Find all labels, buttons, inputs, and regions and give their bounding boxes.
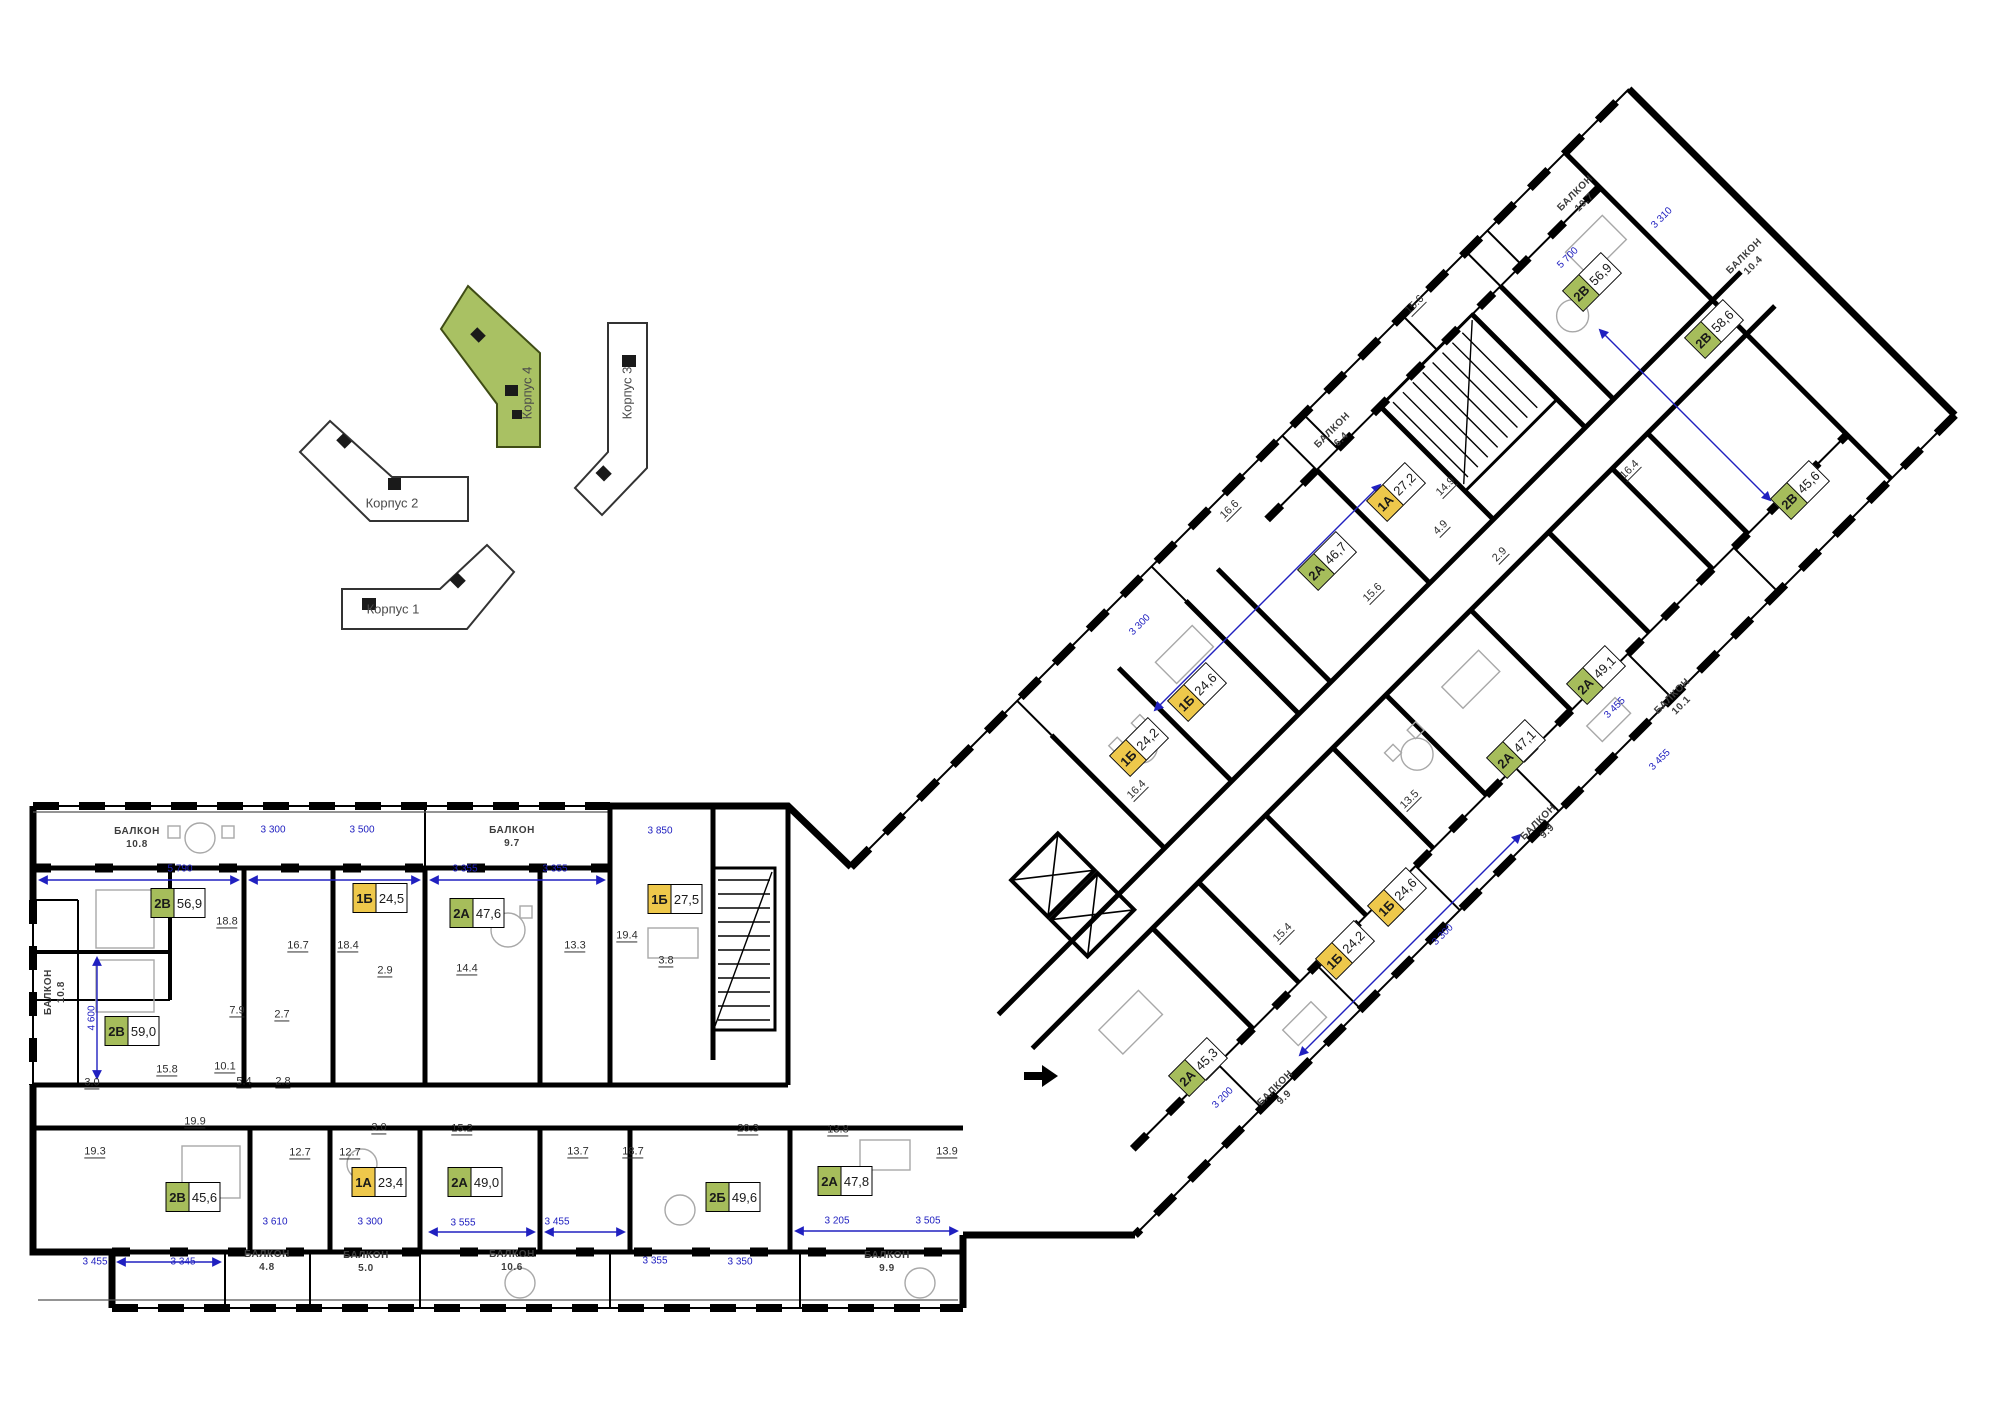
apartment-badge[interactable]: 1Б24,2	[1109, 717, 1169, 777]
room-area-label: 3.8	[658, 954, 673, 967]
apartment-area: 47,6	[474, 899, 504, 927]
balcony-area: 10.8	[114, 838, 160, 851]
balcony-label: БАЛКОН4.8	[244, 1248, 290, 1274]
dimension-label: 3 455	[544, 1217, 569, 1228]
room-area-label: 15.2	[451, 1122, 472, 1135]
room-area-label: 14.4	[456, 962, 477, 975]
dimension-label: 3 500	[349, 825, 374, 836]
balcony-area: 10.8	[55, 969, 68, 1015]
room-area-label: 2.9	[377, 964, 392, 977]
room-area-label: 13.7	[567, 1145, 588, 1158]
room-area-label: 10.1	[214, 1060, 235, 1073]
site-label-korpus-2[interactable]: Корпус 2	[366, 496, 419, 511]
balcony-word: БАЛКОН	[489, 824, 535, 837]
balcony-word: БАЛКОН	[489, 1248, 535, 1261]
apartment-area: 45,6	[190, 1183, 220, 1211]
apartment-badge[interactable]: 2В58,6	[1684, 299, 1744, 359]
apartment-badge[interactable]: 2А49,0	[448, 1167, 503, 1197]
dimension-label: 3 850	[647, 826, 672, 837]
balcony-label: БАЛКОН6.4	[1312, 410, 1363, 461]
room-area-label: 16.6	[1218, 498, 1242, 522]
apartment-badge[interactable]: 2А46,7	[1297, 531, 1357, 591]
apartment-type: 2А	[819, 1167, 842, 1195]
floorplan-page: 2В56,91Б24,52А47,61Б27,52В59,02В45,61А23…	[0, 0, 2000, 1415]
balcony-label: БАЛКОН10.6	[489, 1248, 535, 1274]
apartment-type: 1А	[353, 1168, 376, 1196]
dimension-label: 3 300	[1127, 612, 1152, 637]
apartment-area: 59,0	[129, 1017, 159, 1045]
dimension-label: 4 600	[87, 1005, 98, 1030]
apartment-badge[interactable]: 2А47,6	[450, 898, 505, 928]
balcony-word: БАЛКОН	[864, 1249, 910, 1262]
apartment-badge[interactable]: 2Б49,6	[706, 1182, 761, 1212]
balcony-label: БАЛКОН10.8	[42, 969, 68, 1015]
balcony-label: БАЛКОН9.9	[1518, 802, 1569, 853]
balcony-word: БАЛКОН	[343, 1249, 389, 1262]
dimension-label: 3 310	[1649, 205, 1674, 230]
balcony-label: БАЛКОН9.9	[1255, 1068, 1306, 1119]
apartment-badge[interactable]: 1Б24,6	[1167, 662, 1227, 722]
room-area-label: 14.9	[1434, 475, 1458, 499]
room-area-label: 13.9	[936, 1145, 957, 1158]
balcony-area: 9.7	[489, 837, 535, 850]
site-label-korpus-4[interactable]: Корпус 4	[520, 367, 535, 420]
apartment-type: 2А	[449, 1168, 472, 1196]
apartment-area: 49,0	[472, 1168, 502, 1196]
apartment-badge[interactable]: 2А45,3	[1168, 1037, 1228, 1097]
balcony-area: 5.0	[343, 1262, 389, 1275]
apartment-area: 49,6	[730, 1183, 760, 1211]
balcony-label: БАЛКОН5.0	[343, 1249, 389, 1275]
balcony-area: 9.9	[864, 1262, 910, 1275]
room-area-label: 4.9	[1431, 518, 1451, 538]
room-area-label: 2.8	[275, 1075, 290, 1088]
room-area-label: 19.4	[616, 929, 637, 942]
dimension-label: 3 300	[260, 825, 285, 836]
apartment-badge[interactable]: 1Б27,5	[648, 884, 703, 914]
balcony-area: 10.6	[489, 1261, 535, 1274]
apartment-type: 2В	[167, 1183, 190, 1211]
room-area-label: 15.8	[156, 1063, 177, 1076]
apartment-badge[interactable]: 1А23,4	[352, 1167, 407, 1197]
dimension-label: 3 355	[642, 1256, 667, 1267]
site-label-korpus-3[interactable]: Корпус 3	[620, 367, 635, 420]
dimension-label: 3 300	[357, 1217, 382, 1228]
room-area-label: 3.0	[84, 1076, 99, 1089]
apartment-type: 1Б	[649, 885, 672, 913]
dimension-label: 3 455	[1602, 695, 1627, 720]
dimension-label: 5 700	[1555, 245, 1580, 270]
room-area-label: 12.7	[339, 1146, 360, 1159]
dimension-label: 3 355	[542, 864, 567, 875]
balcony-word: БАЛКОН	[244, 1248, 290, 1261]
room-area-label: 13.8	[827, 1123, 848, 1136]
dimension-label: 3 300	[1430, 922, 1455, 947]
room-area-label: 20.3	[737, 1122, 758, 1135]
apartment-badge[interactable]: 2В45,6	[166, 1182, 221, 1212]
apartment-badge[interactable]: 1Б24,6	[1367, 867, 1427, 927]
apartment-type: 2А	[451, 899, 474, 927]
room-area-label: 13.5	[1398, 788, 1422, 812]
dimension-label: 3 555	[450, 1218, 475, 1229]
room-area-label: 19.3	[84, 1145, 105, 1158]
apartment-type: 2В	[106, 1017, 129, 1045]
room-area-label: 15.4	[1271, 921, 1295, 945]
dimension-label: 3 355	[452, 864, 477, 875]
apartment-badge[interactable]: 2А47,8	[818, 1166, 873, 1196]
room-area-label: 2.9	[1490, 545, 1510, 565]
room-area-label: 2.7	[274, 1008, 289, 1021]
dimension-label: 3 205	[824, 1216, 849, 1227]
balcony-label: БАЛКОН9.7	[489, 824, 535, 850]
dimension-label: 5 790	[167, 864, 192, 875]
apartment-badge[interactable]: 1Б24,5	[353, 883, 408, 913]
apartment-badge[interactable]: 2В56,9	[151, 888, 206, 918]
balcony-word: БАЛКОН	[42, 969, 55, 1015]
apartment-area: 23,4	[376, 1168, 406, 1196]
room-area-label: 16.7	[287, 939, 308, 952]
apartment-area: 56,9	[175, 889, 205, 917]
room-area-label: 12.7	[289, 1146, 310, 1159]
room-area-label: 18.8	[216, 915, 237, 928]
balcony-label: БАЛКОН10.1	[1652, 676, 1703, 727]
apartment-area: 27,5	[672, 885, 702, 913]
apartment-badge[interactable]: 1Б24,2	[1315, 920, 1375, 980]
room-area-label: 15.6	[1403, 293, 1427, 317]
balcony-label: БАЛКОН9.9	[864, 1249, 910, 1275]
room-area-label: 19.9	[184, 1115, 205, 1128]
room-area-label: 18.7	[622, 1145, 643, 1158]
dimension-label: 3 200	[1210, 1085, 1235, 1110]
room-area-label: 16.4	[1618, 458, 1642, 482]
room-area-label: 16.4	[1125, 778, 1149, 802]
apartment-badge[interactable]: 2В45,6	[1770, 460, 1830, 520]
balcony-word: БАЛКОН	[114, 825, 160, 838]
apartment-type: 2В	[152, 889, 175, 917]
apartment-badge[interactable]: 1А27,2	[1366, 462, 1426, 522]
dimension-label: 3 505	[915, 1216, 940, 1227]
apartment-area: 24,5	[377, 884, 407, 912]
site-label-korpus-1[interactable]: Корпус 1	[367, 602, 420, 617]
apartment-area: 47,8	[842, 1167, 872, 1195]
dimension-label: 3 345	[170, 1257, 195, 1268]
dimension-label: 3 455	[82, 1257, 107, 1268]
room-area-label: 15.6	[1361, 581, 1385, 605]
balcony-area: 4.8	[244, 1261, 290, 1274]
apartment-badge[interactable]: 2А47,1	[1486, 719, 1546, 779]
dimension-label: 3 455	[1647, 747, 1672, 772]
dimension-label: 3 610	[262, 1217, 287, 1228]
dimension-label: 3 350	[727, 1257, 752, 1268]
apartment-badge[interactable]: 2А49,1	[1566, 645, 1626, 705]
balcony-label: БАЛКОН10.7	[1555, 173, 1606, 224]
balcony-label: БАЛКОН10.8	[114, 825, 160, 851]
room-area-label: 3.0	[371, 1121, 386, 1134]
apartment-badge[interactable]: 2В59,0	[105, 1016, 160, 1046]
room-area-label: 13.3	[564, 939, 585, 952]
room-area-label: 5.4	[236, 1075, 251, 1088]
apartment-type: 2Б	[707, 1183, 730, 1211]
label-layer: 2В56,91Б24,52А47,61Б27,52В59,02В45,61А23…	[0, 0, 2000, 1415]
balcony-label: БАЛКОН10.4	[1724, 236, 1775, 287]
room-area-label: 18.4	[337, 939, 358, 952]
room-area-label: 7.9	[229, 1004, 244, 1017]
apartment-type: 1Б	[354, 884, 377, 912]
